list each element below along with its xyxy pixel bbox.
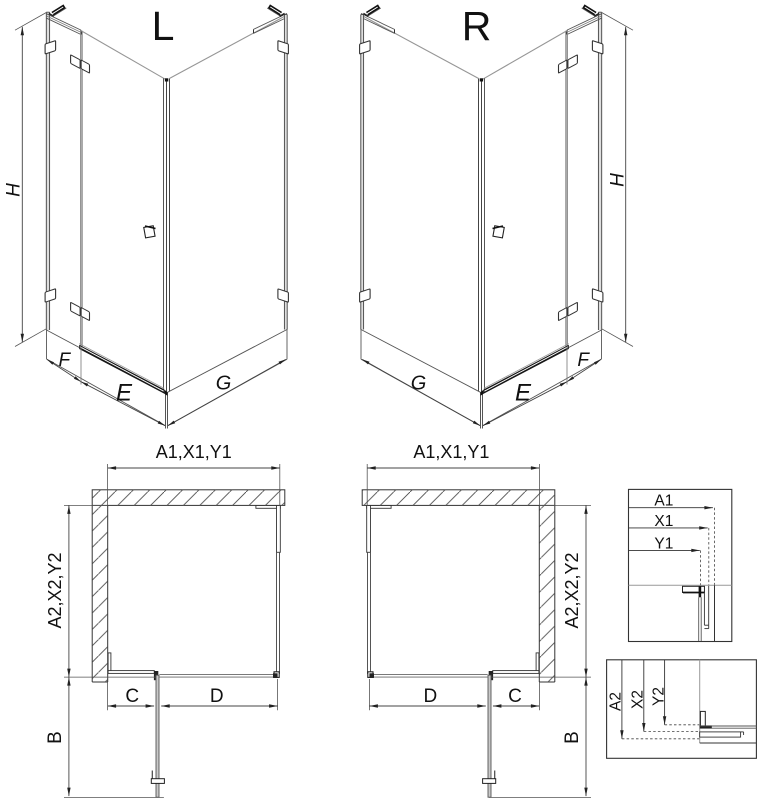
svg-text:D: D	[210, 686, 224, 707]
svg-text:A1,X1,Y1: A1,X1,Y1	[156, 442, 232, 462]
svg-text:A2,X2,Y2: A2,X2,Y2	[45, 552, 65, 628]
svg-text:X2: X2	[630, 690, 647, 709]
svg-text:E: E	[116, 380, 133, 407]
svg-text:D: D	[424, 686, 438, 707]
svg-text:X1: X1	[654, 513, 673, 530]
svg-text:B: B	[562, 731, 583, 744]
svg-text:G: G	[216, 373, 232, 395]
svg-text:H: H	[607, 173, 628, 187]
svg-text:Y2: Y2	[651, 687, 668, 706]
svg-text:A2: A2	[608, 692, 625, 711]
svg-text:C: C	[508, 686, 522, 707]
svg-text:F: F	[577, 350, 590, 371]
svg-text:L: L	[152, 3, 175, 49]
svg-text:A1: A1	[654, 493, 673, 510]
svg-text:H: H	[4, 183, 25, 197]
svg-text:F: F	[58, 350, 71, 371]
svg-text:E: E	[515, 380, 532, 407]
svg-text:A1,X1,Y1: A1,X1,Y1	[413, 442, 489, 462]
svg-text:Y1: Y1	[654, 535, 673, 552]
svg-text:G: G	[411, 373, 427, 395]
svg-text:A2,X2,Y2: A2,X2,Y2	[562, 552, 582, 628]
svg-text:B: B	[45, 731, 66, 744]
svg-text:R: R	[462, 3, 492, 49]
svg-text:C: C	[125, 686, 139, 707]
